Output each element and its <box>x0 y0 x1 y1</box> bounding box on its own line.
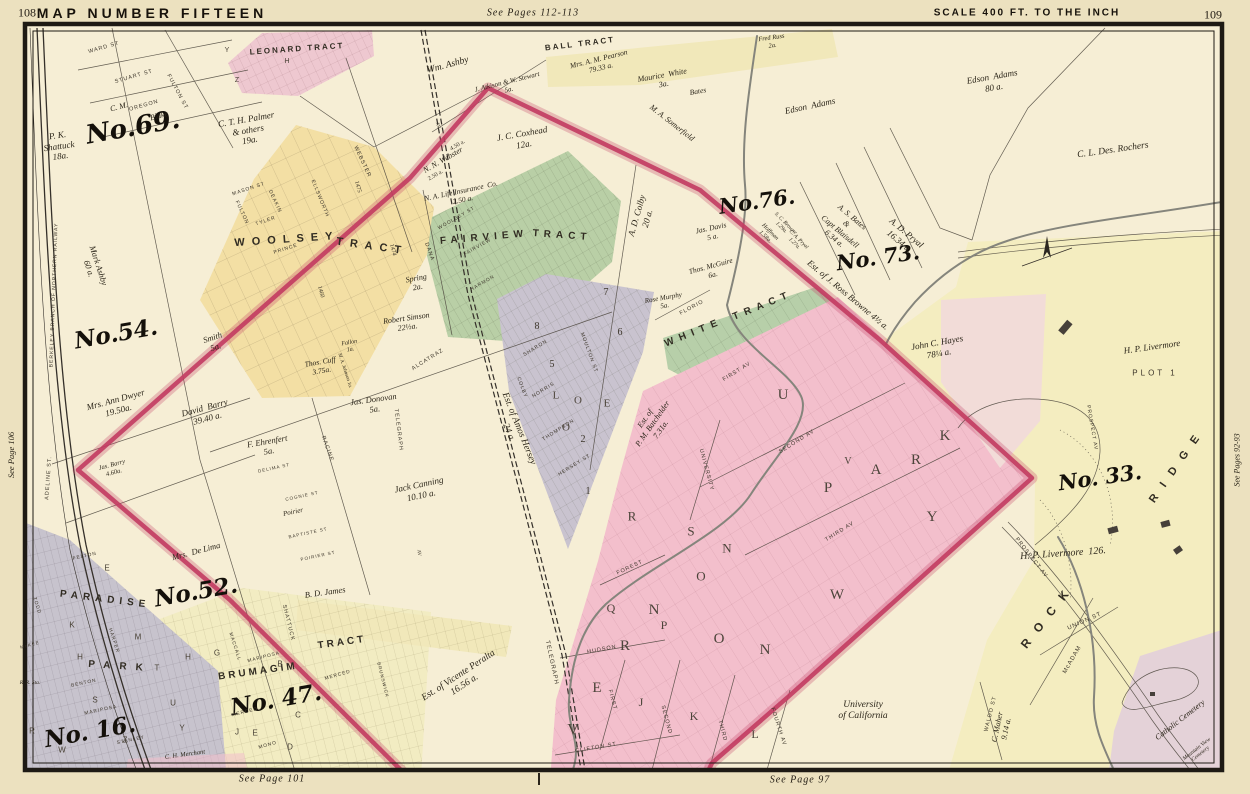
label-fulton: FULTON <box>233 200 249 226</box>
label-u: U <box>170 698 176 707</box>
label-mrs-de-lima: Mrs. De Lima <box>171 540 221 563</box>
label-o: O <box>574 395 582 408</box>
label-no-54: No.54. <box>72 313 159 354</box>
label-webster: WEBSTER <box>352 145 372 179</box>
label-david-barry-39-40-a: David Barry 39.40 a. <box>180 397 231 430</box>
label-no-76: No.76. <box>717 184 796 219</box>
label-cognie-st: COGNIE ST <box>285 490 319 502</box>
label-p: P <box>824 480 832 498</box>
label-no-52: No.52. <box>152 571 239 612</box>
label-2: 2 <box>581 434 586 446</box>
label-h: H <box>77 652 83 661</box>
label-j: J <box>639 695 644 709</box>
label-prospect-av: PROSPECT AV <box>1084 405 1098 451</box>
label-university: UNIVERSITY <box>697 448 714 491</box>
label-spring-2a: Spring 2a. <box>405 272 429 294</box>
label-university-of-california: University of California <box>838 700 887 722</box>
label-stuart-st: STUART ST <box>114 68 154 85</box>
label-edson-adams: Edson Adams <box>784 95 836 116</box>
label-y: Y <box>179 723 184 732</box>
label-delima-st: DELIMA ST <box>258 462 291 474</box>
label-w: W <box>58 745 66 754</box>
label-fred-russ-2a: Fred Russ 2a. <box>758 33 786 52</box>
label-alcatraz: ALCATRAZ <box>411 348 445 373</box>
label-e: E <box>104 563 109 572</box>
label-av: AV. <box>433 122 441 131</box>
label-y: Y <box>225 47 230 55</box>
label-brumagim: BRUMAGIM <box>218 661 299 684</box>
label-c-l-des-rochers: C. L. Des. Rochers <box>1077 140 1150 161</box>
label-catholic-cemetery: Catholic Cemetery <box>1153 698 1206 743</box>
label-edson-adams-80-a: Edson Adams 80 a. <box>966 67 1020 97</box>
label-harper: HARPER <box>106 628 119 654</box>
label-third-av: THIRD AV <box>824 521 855 544</box>
label-paradise: PARADISE <box>59 589 151 612</box>
label-tract: TRACT <box>335 236 408 259</box>
label-mckee: McKEE <box>20 640 41 650</box>
label-p: P <box>661 618 668 632</box>
label-ellsworth: ELLSWORTH <box>309 179 329 218</box>
label-clifton-st: CLIFTON ST. <box>575 741 619 755</box>
label-mcadam: McADAM <box>1062 645 1084 676</box>
label-5: 5 <box>550 359 555 371</box>
label-k: K <box>690 709 699 723</box>
label-o: O <box>696 568 705 583</box>
label-woolsey-st: WOOLSEY ST <box>438 206 477 232</box>
label-deakin: DEAKIN <box>266 190 282 215</box>
gutter-tick <box>538 773 540 785</box>
label-smith-5a: Smith 5a. <box>202 329 227 354</box>
label-e: E <box>252 728 257 737</box>
label-third: THIRD <box>716 720 728 743</box>
label-l: L <box>553 390 560 403</box>
label-adeline-st: ADELINE ST. <box>44 456 54 500</box>
label-moulton-st: MOULTON ST <box>578 332 598 374</box>
label-maccall: MACCALL <box>227 632 242 662</box>
label-av: AV <box>415 549 422 556</box>
label-n: N <box>649 602 660 620</box>
label-jas-davis-5-a: Jas. Davis 5 a. <box>695 221 729 245</box>
label-poirier: Poirier <box>282 506 304 518</box>
label-b: B <box>277 659 282 668</box>
label-c-t-h-palmer-others-19a: C. T. H. Palmer & others 19a. <box>217 109 279 150</box>
label-brunswick: BRUNSWICK <box>376 662 390 699</box>
label-y: Y <box>927 509 938 527</box>
label-fallon-1a: Fallon 1a. <box>341 339 359 356</box>
label-c: C <box>295 710 301 719</box>
label-r-i-d-g-e: R I D G E <box>1147 430 1205 505</box>
label-harmon: HARMON <box>470 275 496 294</box>
label-telegraph: TELEGRAPH <box>392 409 404 452</box>
label-n: N <box>722 540 731 555</box>
label-jack-canning-10-10-a: Jack Canning 10.10 a. <box>393 474 446 505</box>
label-leonard-tract: LEONARD TRACT <box>249 41 344 57</box>
label-mrs-a-m-pearson-79-33-a: Mrs. A. M. Pearson 79.33 a. <box>569 48 631 79</box>
label-r: R <box>628 508 637 523</box>
map-labels: No.69.No.54.No.52.No. 16.No. 47.No.76.No… <box>0 0 1250 794</box>
label-ward-st: WARD ST <box>88 40 121 55</box>
label-bates: Bates <box>689 86 707 98</box>
label-v: V <box>567 722 579 741</box>
label-mrs-ann-dwyer-19-50a: Mrs. Ann Dwyer 19.50a. <box>85 387 148 423</box>
label-mason-st: MASON ST <box>232 182 266 198</box>
label-thos-cuff-3-75a: Thos. Cuff 3.75a. <box>304 356 338 379</box>
label-r: R <box>620 638 630 656</box>
label-est-of-vicente-peralta-16-56-a: Est. of Vicente Peralta 16.56 a. <box>420 648 504 713</box>
label-m: M <box>135 632 142 641</box>
label-h: H <box>284 58 289 66</box>
label-sharon: SHARON <box>523 339 549 359</box>
label-colby: COLBY <box>514 377 527 400</box>
label-tract: TRACT <box>532 228 592 244</box>
label-first-av: FIRST AV <box>722 361 753 383</box>
label-rose-murphy-5a: Rose Murphy 5a. <box>644 291 684 314</box>
label-est-of-amos-hersey-24-a: Est. of Amos Hersey 24 a. <box>488 391 538 471</box>
label-r-o-c-k: R O C K <box>1018 585 1074 652</box>
label-j: J <box>235 727 239 736</box>
label-d: D <box>287 742 293 751</box>
label-h: H <box>185 652 191 661</box>
label-thos-mcguire-6a: Thos. McGuire 6a. <box>688 257 736 286</box>
label-hudson: HUDSON <box>587 644 618 656</box>
label-see-page-106: See Page 106 <box>6 432 16 478</box>
see-page-bottom-left: See Page 101 <box>239 774 305 785</box>
label-q: Q <box>607 601 616 615</box>
label-tract: TRACT <box>731 289 795 324</box>
label-hersey-st: HERSEY ST <box>558 454 593 479</box>
label-j-c-coxhead-12a: J. C. Coxhead 12a. <box>496 124 550 154</box>
label-no-16: No. 16. <box>42 711 137 754</box>
label-shattuck: SHATTUCK <box>280 604 295 642</box>
label-b-d-james: B. D. James <box>304 584 346 600</box>
label-park: PARK <box>88 659 152 675</box>
label-e: E <box>604 398 611 411</box>
label-todd: TODD <box>31 597 42 615</box>
label-n: N <box>760 642 771 660</box>
label-telegraph: TELEGRAPH <box>543 640 559 686</box>
label-tract: TRACT <box>317 634 367 652</box>
label-white: WHITE <box>663 316 725 350</box>
label-p-k-shattuck-18a: P. K. Shattuck 18a. <box>41 128 76 164</box>
label-wm-ashby: Wm. Ashby <box>426 55 470 77</box>
label-c-m: C. M. <box>109 100 129 114</box>
label-e: E <box>592 680 601 698</box>
label-7: 7 <box>604 287 609 299</box>
label-s: S <box>687 523 694 538</box>
label-a-d-colby-20-a: A. D. Colby 20 a. <box>626 194 658 241</box>
label-n-a-life-insurance-co-2-50-a: N. A. Life Insurance Co. 2.50 a. <box>424 180 501 213</box>
label-racine: RACINE <box>319 435 334 462</box>
label-merced: MERCED <box>324 670 351 683</box>
label-a: A <box>871 462 882 480</box>
label-tyler: TYLER <box>255 216 277 228</box>
label-g: G <box>214 648 220 657</box>
label-m-a-johnson-1a: M. A. Johnson 1a. <box>336 353 353 389</box>
label-j-atkison-w-stewart-5a: J. Atkison & W. Stewart 5a. <box>474 70 543 102</box>
label-mountain-view-cemetery: Mountain View Cemetery <box>1182 737 1216 768</box>
label-h-p-livermore: H. P. Livermore <box>1123 338 1181 356</box>
label-8: 8 <box>535 321 540 333</box>
label-k: K <box>940 428 951 446</box>
label-v: V <box>844 456 851 468</box>
label-u: U <box>778 387 789 405</box>
label-c-h-merchant: C. H. Merchant <box>164 748 205 761</box>
label-berkeley-branch-of-northern-railway: BERKELEY BRANCH OF NORTHERN RAILWAY <box>50 223 61 368</box>
label-fourth-av: FOURTH AV <box>769 707 788 747</box>
label-maurice-white-3a: Maurice White 3a. <box>637 66 689 93</box>
label-second: SECOND <box>659 705 673 735</box>
label-f-ehrenfert-5a: F. Ehrenfert 5a. <box>246 433 289 460</box>
label-c-a-pryal-1-27a: C. A. Pryal 1.27a. <box>783 229 810 256</box>
label-o: O <box>714 631 725 649</box>
label-jas-donovan-5a: Jas. Donovan 5a. <box>349 391 398 417</box>
label-t: T <box>155 663 160 672</box>
label-1460: 1460 <box>315 285 325 298</box>
label-w: W <box>830 587 844 605</box>
label-s: S <box>92 695 97 704</box>
label-1475: 1475 <box>352 180 362 193</box>
label-see-pages-92-93: See Pages 92-93 <box>1232 433 1241 486</box>
label-no-33: No. 33. <box>1057 460 1144 496</box>
label-mono: MONO <box>258 741 278 752</box>
label-thompson: THOMPSON <box>542 419 576 444</box>
label-r: R <box>29 726 35 735</box>
label-poirier-st: POIRIER ST <box>300 550 336 563</box>
label-benton: BENTON <box>71 679 98 690</box>
label-baptiste-st: BAPTISTE ST <box>288 526 328 539</box>
label-union-st: UNION ST <box>1067 611 1103 632</box>
label-forest: FOREST <box>616 559 644 577</box>
label-r-r-sta: R. R. Sta. <box>20 680 41 686</box>
label-second-av: SECOND AV <box>778 428 816 455</box>
atlas-page: 108 MAP NUMBER FIFTEEN See Pages 112-113… <box>0 0 1250 794</box>
label-l: L <box>751 727 758 741</box>
label-6: 6 <box>618 327 623 339</box>
label-felton: FELTON <box>72 552 97 563</box>
see-page-bottom-right: See Page 97 <box>770 775 830 786</box>
label-jas-barry-4-60a: Jas. Barry 4.60a. <box>98 458 128 480</box>
label-ball-tract: BALL TRACT <box>544 35 615 53</box>
label-r: R <box>911 452 921 470</box>
label-dana: DANA <box>423 242 436 262</box>
label-z: Z <box>235 77 239 85</box>
label-robert-simson-22-a: Robert Simson 22½a. <box>382 310 431 335</box>
label-est-of-p-m-batchelder-7-31a: Est. of P. M. Batchelder 7.31a. <box>626 394 680 454</box>
label-m-a-somerfield: M. A. Somerfield <box>648 103 696 144</box>
label-1: 1 <box>586 486 591 498</box>
label-first: FIRST <box>606 689 618 711</box>
label-john-c-hayes-78-a: John C. Hayes 78¼ a. <box>910 333 966 363</box>
label-plot-1: PLOT 1 <box>1132 368 1177 377</box>
label-k: K <box>69 620 74 629</box>
label-mark-ashby-60-a: Mark Ashby 60 a. <box>78 244 110 289</box>
